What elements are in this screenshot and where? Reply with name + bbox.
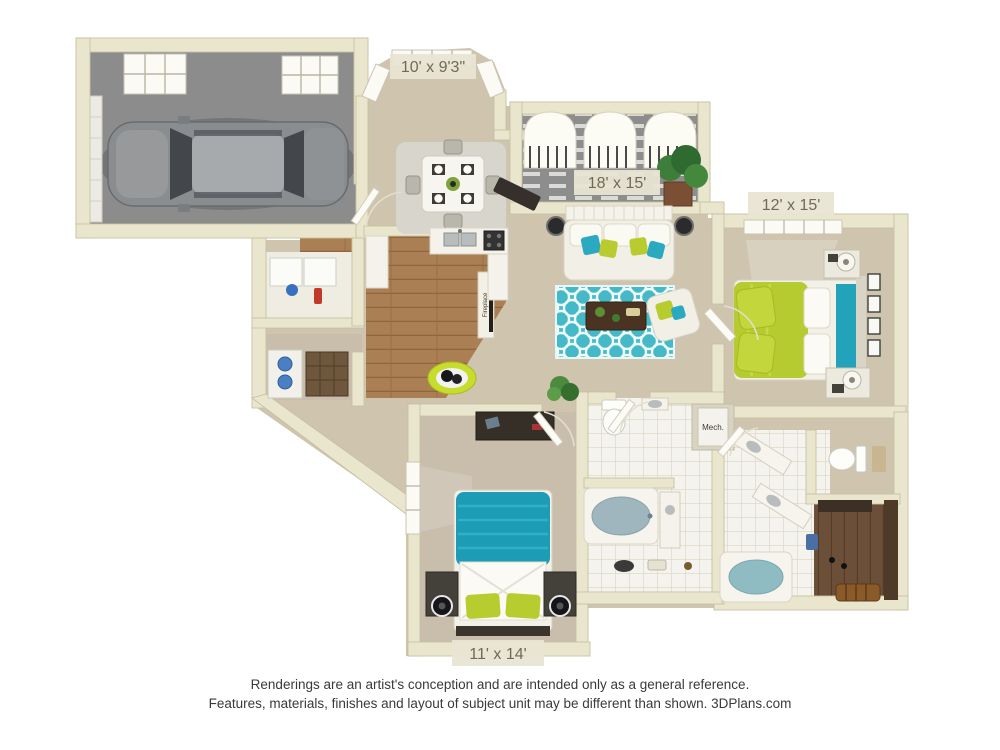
coffee-table-tray [626,308,640,316]
master-tub [720,552,792,602]
sofa-console [566,206,672,220]
bedroom2-duvet-teal [456,492,550,566]
mech-label: Mech. [702,423,724,432]
storage-shelves [306,352,348,396]
master-nightstand-bottom [826,368,870,398]
towel-basket [872,446,886,472]
speaker-left [547,217,565,235]
disclaimer-line2: Features, materials, finishes and layout… [0,695,1000,714]
kitchen-counter-side [488,254,508,300]
car [100,116,356,212]
bedroom2-footboard [456,626,550,636]
nook-dimension: 10' x 9'3" [390,54,476,79]
garage [88,52,376,228]
speaker-right [675,217,693,235]
dining-chair-left [406,176,420,194]
closet-bench [836,584,880,601]
arched-window-1 [524,112,576,168]
dog-bed [428,362,476,394]
sofa [564,220,674,280]
hall-tub [584,488,658,544]
closet-shelving-right [884,500,898,600]
living-dimension: 18' x 15' [574,170,660,195]
master-pillow-white-1 [804,288,830,328]
garage-window-2 [282,56,338,94]
car-mirror-top [178,116,190,124]
coffee-table-plant [595,307,605,317]
svg-text:10' x 9'3": 10' x 9'3" [401,59,465,76]
disclaimer-line1: Renderings are an artist's conception an… [0,676,1000,695]
master-nightstand-top [824,250,860,278]
bedroom2-lime-throw-2 [505,593,541,619]
bedroom2-window [406,462,420,534]
closet-wall-art [806,534,818,550]
floor-plan-rendering: Fireplace [0,0,1000,750]
bedroom2-dimension: 11' x 14' [452,640,544,666]
kitchen-stove [484,231,504,250]
arched-window-2 [584,112,636,168]
storage-room [268,350,348,398]
floor-plan-page: Fireplace [0,0,1000,750]
garage-window-1 [124,54,186,94]
master-teal-runner [836,284,856,376]
bedroom2-lime-throw-1 [465,593,501,619]
dog [441,370,453,382]
bedroom2-nightstand-right [544,572,576,616]
svg-text:12' x 15': 12' x 15' [762,197,821,214]
hall-sink [642,398,668,410]
car-mirror-bottom [178,204,190,212]
washer [270,258,302,286]
dryer [304,258,336,286]
master-dimension: 12' x 15' [748,192,834,217]
bedroom2-bed [454,490,552,636]
hall-bath-counter [660,492,680,548]
kitchen-fridge [366,236,388,288]
detergent [286,284,298,296]
dining-chair-bottom [444,214,462,228]
bedroom2-nightstand-left [426,572,458,616]
coffee-table [586,302,646,330]
master-toilet [829,446,886,472]
dining-chair-top [444,140,462,154]
master-pillow-lime-1 [735,286,776,331]
closet-rod-top [818,500,872,512]
breakfast-nook [396,140,506,234]
master-window [744,220,842,234]
master-pillow-lime-2 [736,332,776,374]
pillow-lime-2 [629,237,648,256]
pillow-lime-1 [599,239,619,259]
pillow-teal-1 [580,234,601,255]
disclaimer: Renderings are an artist's conception an… [0,676,1000,714]
fire-extinguisher [314,288,322,304]
svg-text:11' x 14': 11' x 14' [469,646,526,663]
svg-text:18' x 15': 18' x 15' [588,175,647,192]
